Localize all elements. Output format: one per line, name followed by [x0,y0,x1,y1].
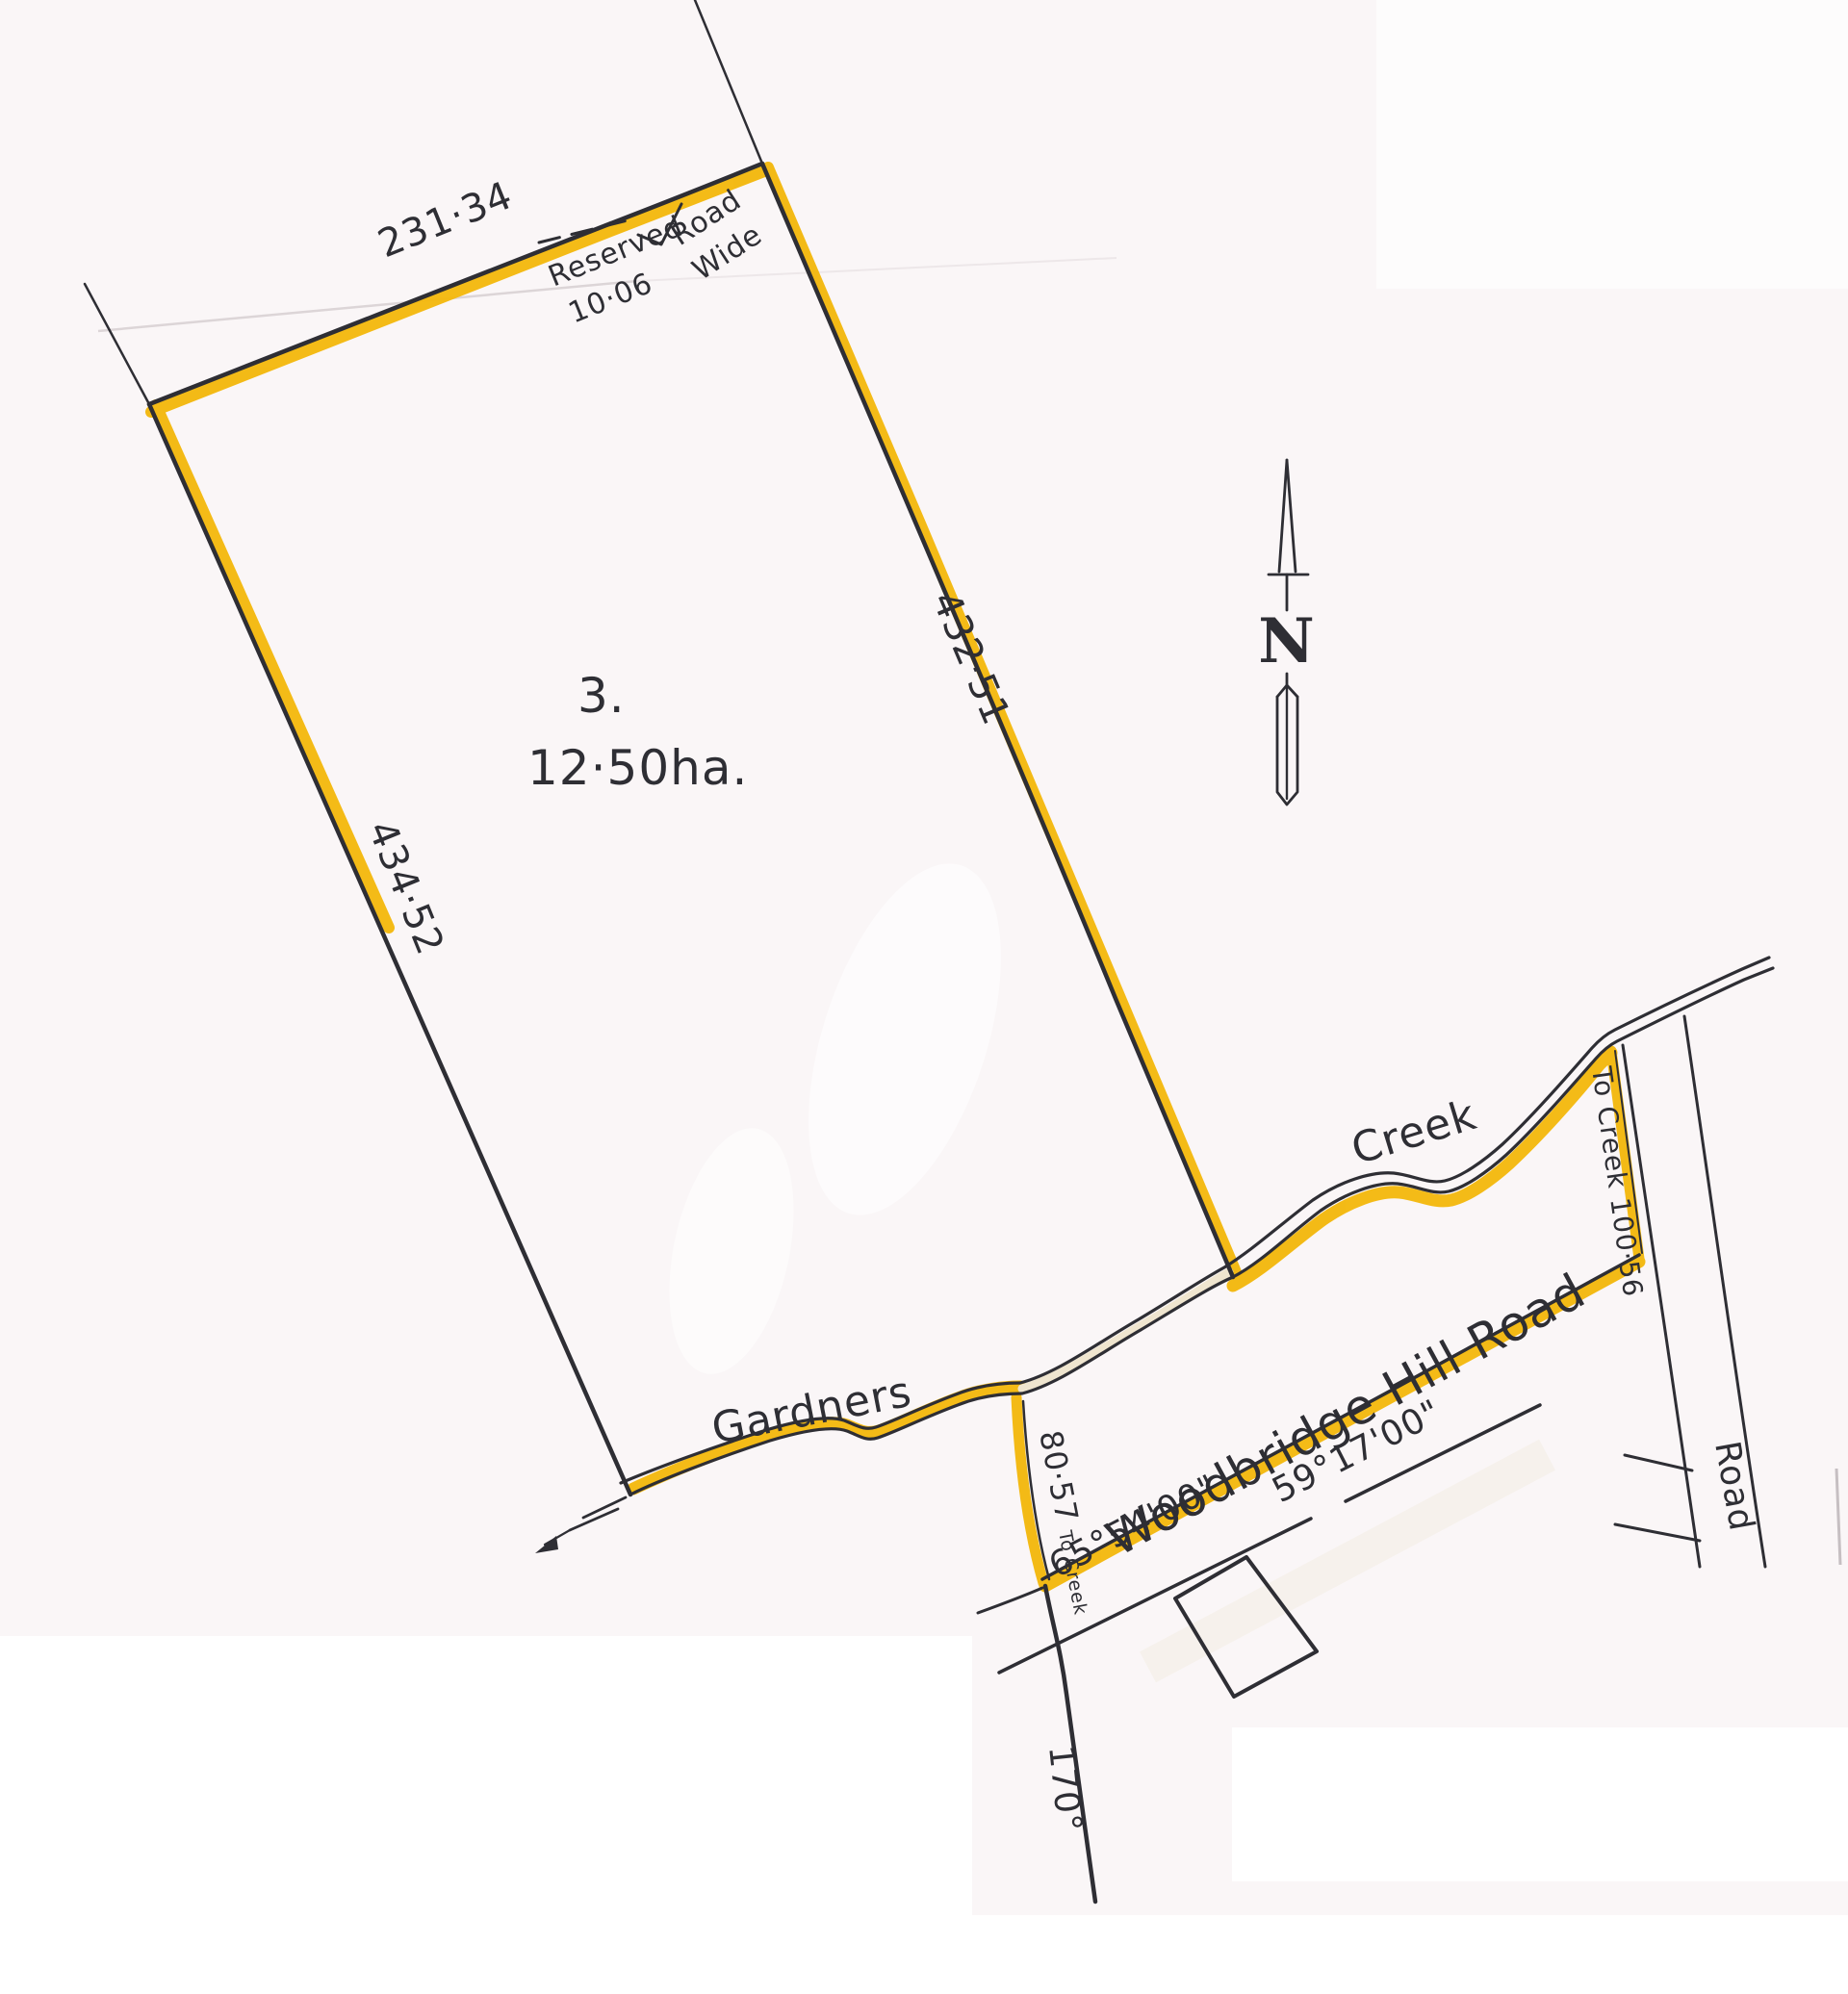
plan-drawing: 231·34 432·51 434·52 Reserved 10·06 Road… [0,0,1848,1994]
white-patch [1232,1727,1848,1881]
lot-number: 3. [577,668,626,724]
lot-area: 12·50ha. [527,740,748,796]
white-patch [1376,0,1848,289]
survey-plan-page: 231·34 432·51 434·52 Reserved 10·06 Road… [0,0,1848,1994]
white-patch [0,1915,1848,1994]
north-letter: N [1258,605,1316,677]
